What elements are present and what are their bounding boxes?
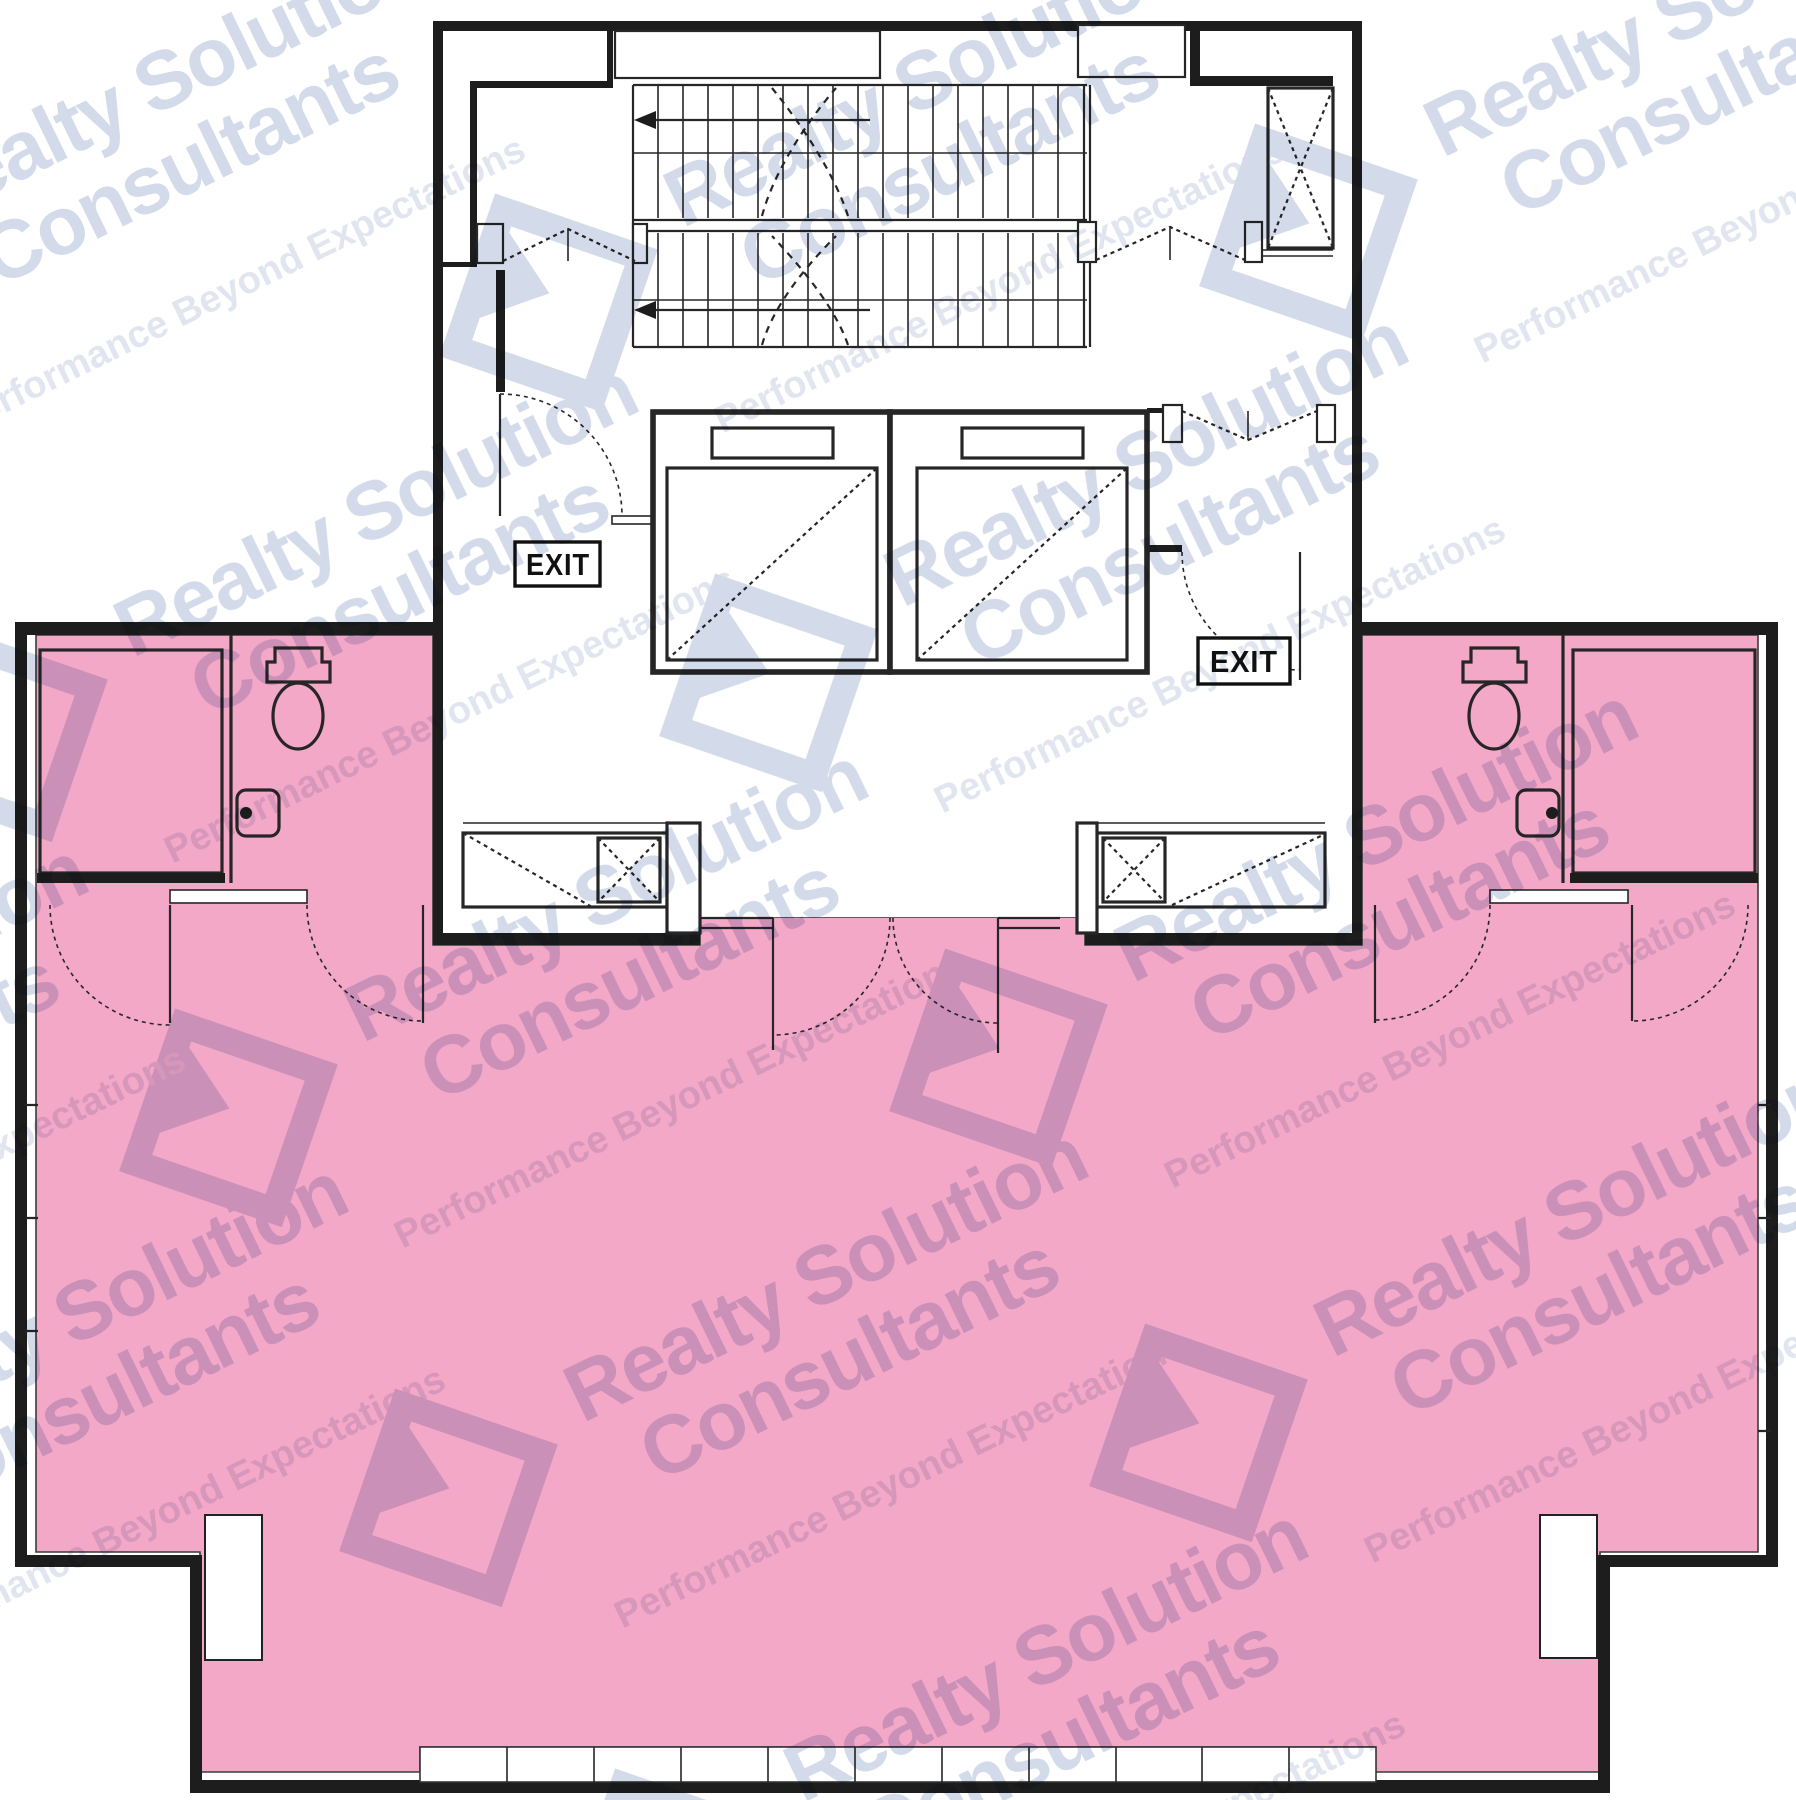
- storage-room-right-south-wall: [1570, 873, 1758, 883]
- pier-southeast: [1540, 1515, 1597, 1658]
- room-tr-wall-f: [1190, 21, 1200, 82]
- north-wall-right: [1362, 622, 1778, 635]
- door-lintel-wall: [170, 890, 307, 903]
- pier-southwest: [205, 1515, 262, 1660]
- southeast-step-wall-h: [1598, 1555, 1778, 1567]
- room-tl-wall-a: [607, 21, 613, 88]
- floor-plan-canvas: Realty Solution Consultants Performance …: [0, 0, 1796, 1800]
- door-jamb-wall: [612, 516, 655, 524]
- southwest-step-wall-v: [190, 1555, 202, 1793]
- shaft-pier: [1077, 823, 1097, 933]
- room-tl-wall-b: [470, 81, 613, 88]
- southeast-step-wall-v: [1598, 1555, 1610, 1793]
- floor-plan-page: Realty Solution Consultants Performance …: [0, 0, 1796, 1800]
- room-tr-wall-g: [1190, 76, 1333, 86]
- core-north-wall: [433, 21, 1362, 31]
